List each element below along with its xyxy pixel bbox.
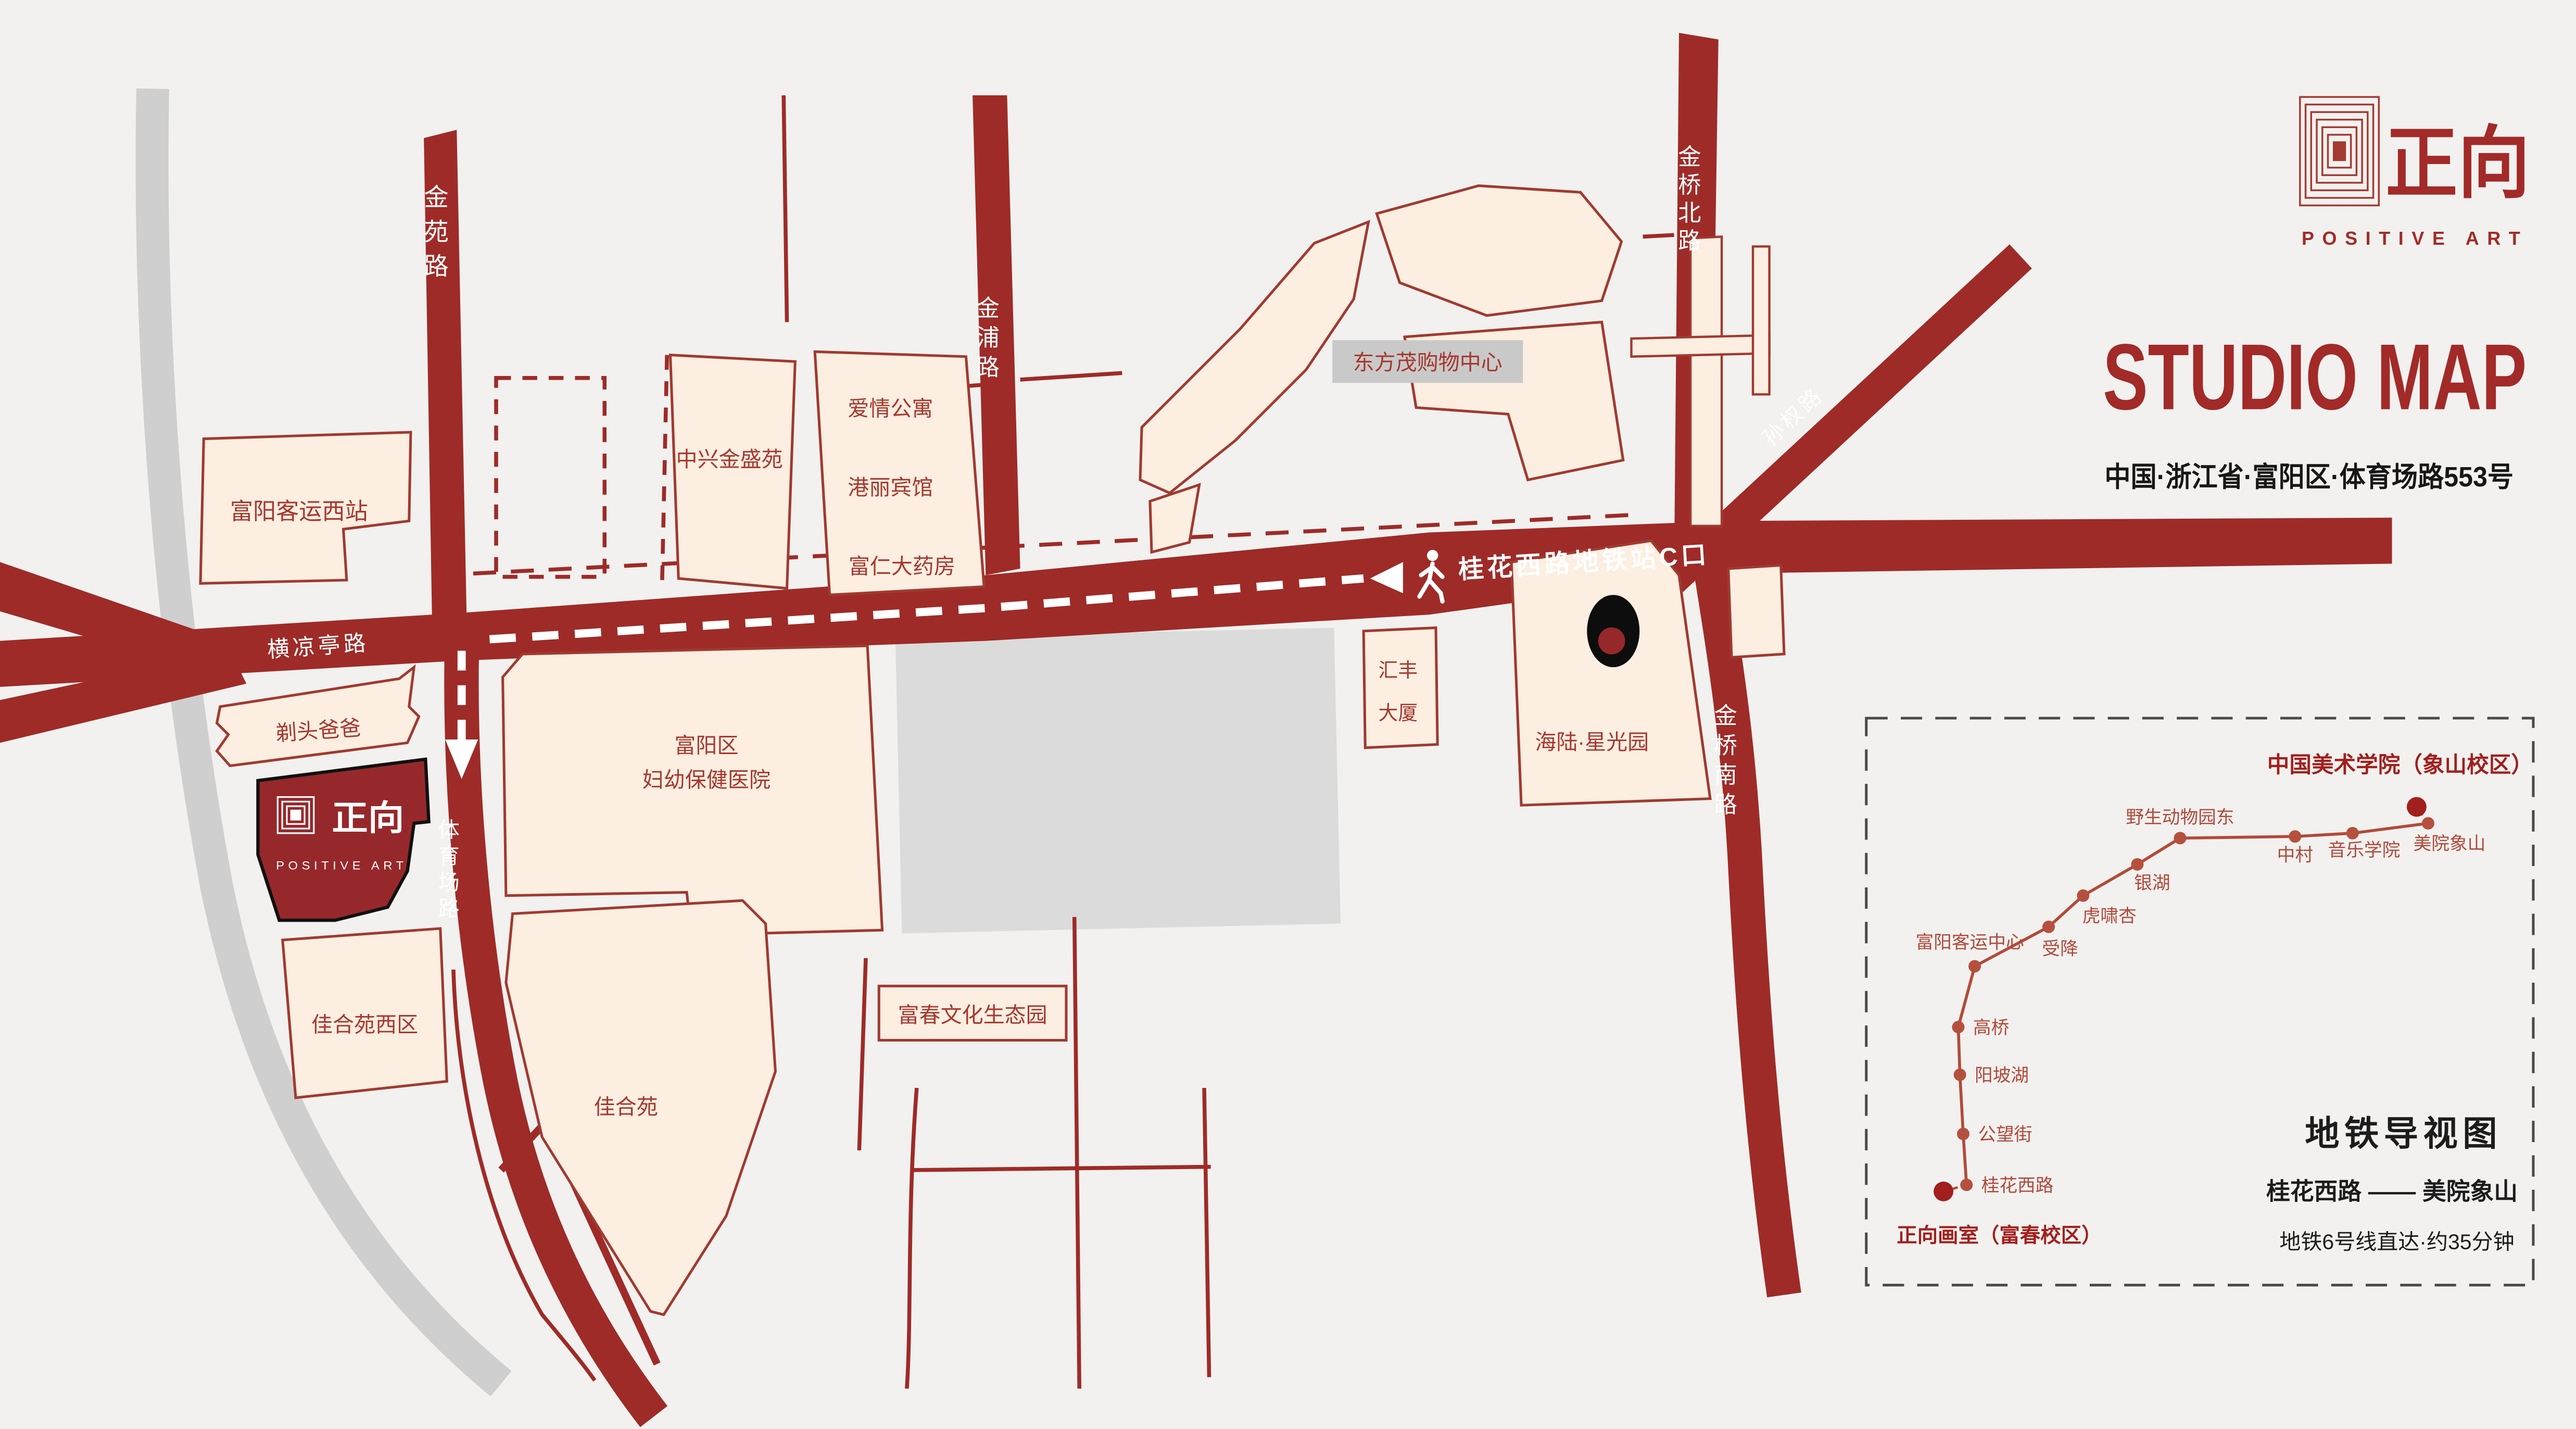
metro-station-dot	[2422, 817, 2434, 830]
building-huifeng	[1363, 628, 1437, 747]
metro-entrance-marker	[1587, 595, 1639, 667]
label-jiahe: 佳合苑	[594, 1095, 658, 1119]
metro-station-label: 公望街	[1978, 1124, 2032, 1145]
label-huifeng-2: 大厦	[1379, 703, 1418, 724]
label-aiqing: 爱情公寓	[848, 396, 933, 420]
brand-logo-en: POSITIVE ART	[2302, 228, 2528, 249]
label-dongfangmao: 东方茂购物中心	[1353, 350, 1502, 374]
metro-station-label: 富阳客运中心	[1915, 932, 2024, 952]
gray-block	[895, 628, 1341, 933]
label-gangli: 港丽宾馆	[848, 475, 933, 499]
metro-station-label: 桂花西路	[1981, 1175, 2054, 1196]
diagram-route-line: 桂花西路 —— 美院象山	[2266, 1179, 2518, 1205]
metro-station-dot	[2289, 830, 2301, 843]
label-fuchun-park: 富春文化生态园	[898, 1003, 1047, 1027]
metro-station-label: 银湖	[2134, 873, 2170, 893]
metro-station-dot	[2174, 832, 2186, 844]
building-small-east	[1728, 566, 1784, 658]
label-zhongxing: 中兴金盛苑	[676, 447, 783, 471]
metro-station-label: 野生动物园东	[2126, 807, 2234, 828]
road-label-jinpu: 金浦路	[973, 296, 999, 385]
diagram-destination-label: 中国美术学院（象山校区）	[2267, 753, 2533, 778]
metro-station-dot	[2346, 827, 2359, 839]
diagram-title: 地铁导视图	[2305, 1114, 2502, 1153]
metro-station-label: 受降	[2042, 938, 2078, 959]
building-titou-banner	[217, 667, 419, 766]
diagram-note: 地铁6号线直达·约35分钟	[2279, 1230, 2514, 1253]
page-title: STUDIO MAP	[2103, 325, 2527, 430]
map-canvas: 正向 POSITIVE ART 金苑路 金浦路 金桥北路 金桥南路 体育场路 孙…	[0, 0, 2576, 1428]
metro-station-label: 中村	[2277, 845, 2313, 866]
studio-address: 中国·浙江省·富阳区·体育场路553号	[2104, 461, 2514, 493]
metro-station-label: 阳坡湖	[1975, 1066, 2029, 1085]
label-hospital-2: 妇幼保健医院	[642, 768, 771, 792]
label-furen: 富仁大药房	[849, 554, 955, 578]
studio-logo-en: POSITIVE ART	[276, 859, 407, 872]
label-huifeng-1: 汇丰	[1379, 660, 1418, 682]
metro-station-label: 音乐学院	[2328, 840, 2401, 860]
building-hailu	[1511, 541, 1710, 805]
metro-station-dot	[1954, 1069, 1966, 1081]
studio-logo-zh: 正向	[332, 798, 404, 838]
metro-station-dot	[1968, 960, 1981, 973]
building-zhongxing	[670, 355, 795, 588]
metro-station-label: 虎啸杏	[2082, 906, 2137, 926]
building-dongfangmao-d	[1150, 485, 1199, 552]
metro-station-dot	[1952, 1021, 1964, 1033]
subway-diagram: 地铁导视图 桂花西路 —— 美院象山 地铁6号线直达·约35分钟 正向画室（富春…	[1866, 718, 2533, 1285]
header: 正向 POSITIVE ART STUDIO MAP 中国·浙江省·富阳区·体育…	[2103, 97, 2530, 493]
road-label-jinqiao-south: 金桥南路	[1711, 703, 1737, 821]
road-label-tiyuchang: 体育场路	[435, 818, 459, 923]
road-label-jinqiao-north: 金桥北路	[1674, 145, 1700, 257]
metro-station-dot	[2042, 921, 2055, 933]
building-dongfangmao-b	[1377, 186, 1621, 316]
destination-terminal-dot	[2407, 797, 2427, 817]
brand-logo-icon	[2300, 97, 2379, 205]
origin-terminal-dot	[1934, 1182, 1953, 1201]
metro-station-dot	[2077, 889, 2089, 902]
label-jiahe-west: 佳合苑西区	[311, 1013, 418, 1037]
label-hailu: 海陆·星光园	[1535, 730, 1649, 754]
metro-station-dot	[1960, 1179, 1973, 1191]
label-hospital-1: 富阳区	[674, 733, 738, 757]
road-label-jinyuan: 金苑路	[420, 184, 448, 287]
label-passenger-west: 富阳客运西站	[230, 499, 368, 524]
studio-building	[258, 759, 428, 920]
station-structure	[1632, 236, 1770, 525]
metro-station-label: 高桥	[1973, 1018, 2009, 1038]
diagram-origin-label: 正向画室（富春校区）	[1897, 1224, 2102, 1247]
metro-station-dot	[2131, 858, 2143, 871]
brand-logo-zh: 正向	[2385, 117, 2530, 209]
metro-station-dot	[1957, 1127, 1969, 1140]
road-jinqiao-south	[1710, 566, 1784, 1295]
studio-map-poster: 正向 POSITIVE ART 金苑路 金浦路 金桥北路 金桥南路 体育场路 孙…	[0, 0, 2576, 1428]
metro-station-label: 美院象山	[2414, 833, 2486, 854]
